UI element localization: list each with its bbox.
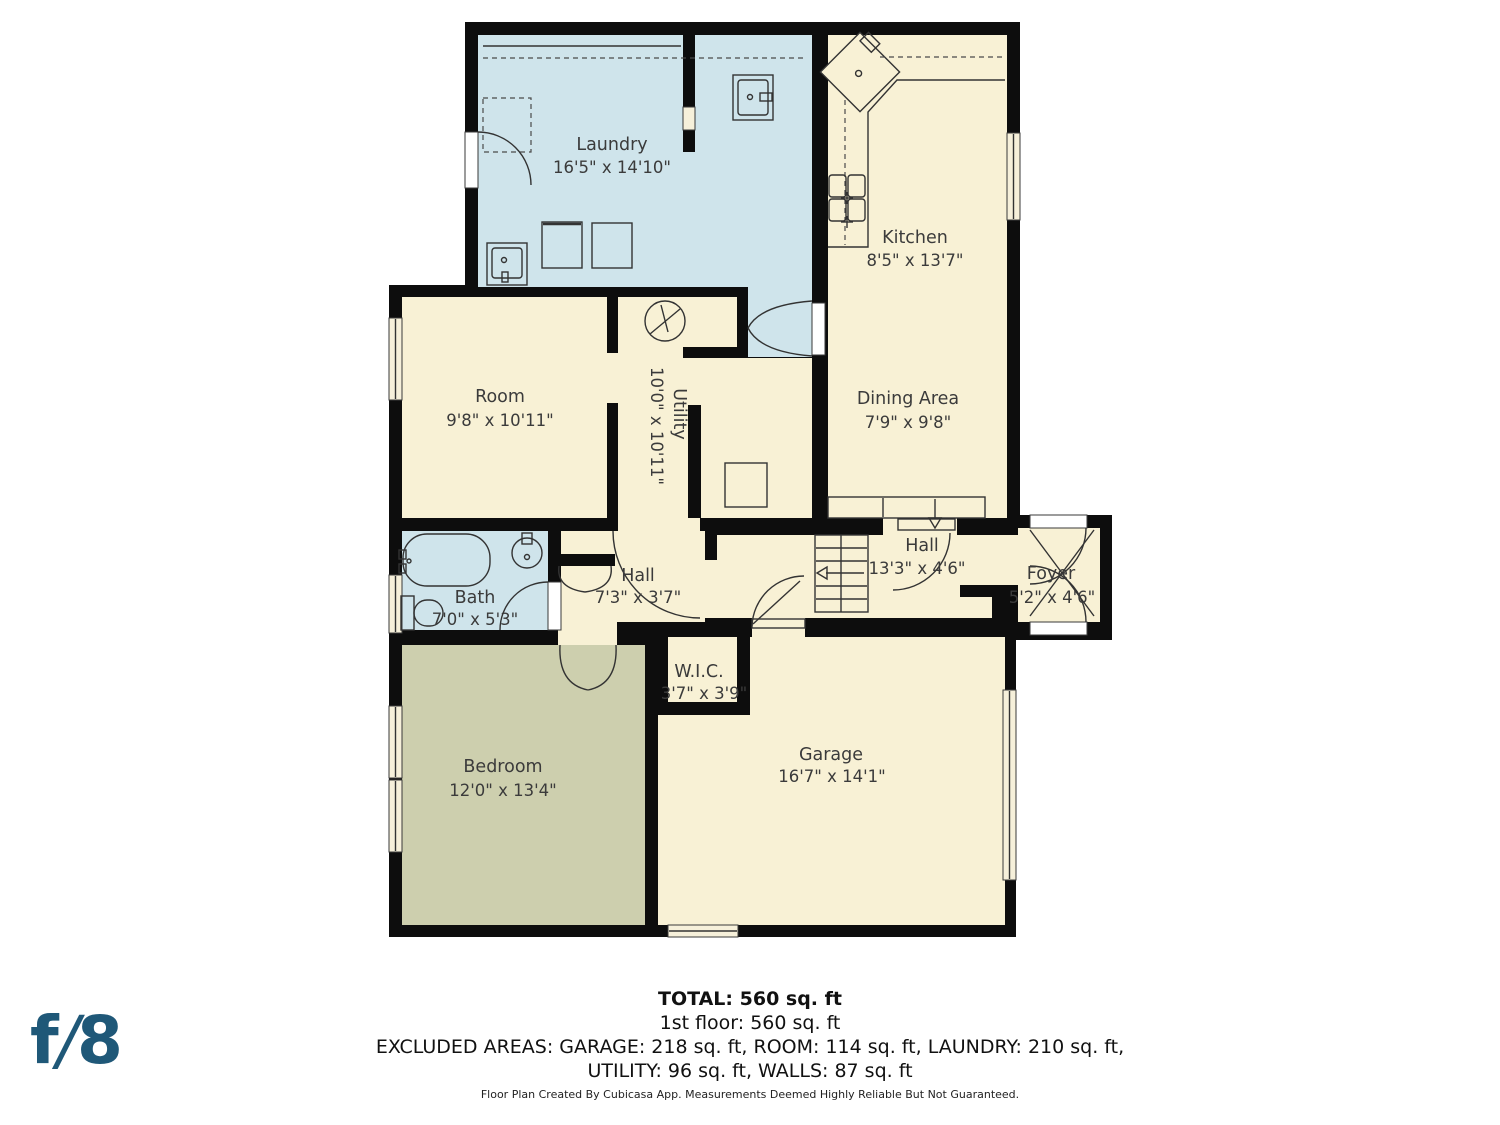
wic-label: W.I.C. bbox=[674, 662, 723, 682]
kitchen-window bbox=[1007, 133, 1020, 220]
excluded-areas-text-2: UTILITY: 96 sq. ft, WALLS: 87 sq. ft bbox=[0, 1060, 1500, 1082]
room-label: Room bbox=[475, 387, 525, 407]
laundry-label: Laundry bbox=[576, 135, 647, 155]
room-floor bbox=[402, 297, 607, 518]
laundry-stub-wall bbox=[683, 22, 695, 107]
logo-8: 8 bbox=[77, 1002, 120, 1079]
f8-logo: f/8 bbox=[30, 1008, 120, 1074]
bath-dims: 7'0" x 5'3" bbox=[432, 610, 519, 629]
utility-hall-opening bbox=[618, 518, 700, 531]
room-utility-opening bbox=[607, 353, 618, 403]
hall-passage-opening bbox=[705, 560, 717, 618]
disclaimer-text: Floor Plan Created By Cubicasa App. Meas… bbox=[0, 1088, 1500, 1101]
laundry-stub-wall-2 bbox=[683, 130, 695, 152]
kitchen-dims: 8'5" x 13'7" bbox=[867, 251, 964, 270]
utility-dims: 10'0" x 10'11" bbox=[647, 367, 666, 485]
dining-label: Dining Area bbox=[857, 389, 959, 409]
bath-label: Bath bbox=[455, 588, 496, 608]
hall-jog-wall-v bbox=[992, 585, 1005, 632]
hall-lower-label: Hall bbox=[621, 566, 655, 586]
excluded-areas-text-1: EXCLUDED AREAS: GARAGE: 218 sq. ft, ROOM… bbox=[0, 1036, 1500, 1058]
hall-lower-dims: 7'3" x 3'7" bbox=[595, 588, 682, 607]
room-window bbox=[389, 318, 402, 400]
room-dims: 9'8" x 10'11" bbox=[446, 411, 554, 430]
floor-plan-page: Laundry 16'5" x 14'10" Kitchen 8'5" x 13… bbox=[0, 0, 1500, 1125]
hall-closet-wall bbox=[552, 554, 615, 566]
utility-label: Utility bbox=[669, 388, 689, 439]
foyer-label: Foyer bbox=[1027, 564, 1076, 584]
bedroom-window-1 bbox=[389, 706, 402, 778]
garage-window-bottom bbox=[668, 925, 738, 937]
kitchen-dining-floor bbox=[828, 35, 1007, 518]
hall-upper-label: Hall bbox=[905, 536, 939, 556]
kitchen-label: Kitchen bbox=[882, 228, 948, 248]
hall-upper-dims: 13'3" x 4'6" bbox=[869, 559, 966, 578]
dining-dims: 7'9" x 9'8" bbox=[865, 413, 952, 432]
first-floor-text: 1st floor: 560 sq. ft bbox=[0, 1012, 1500, 1034]
laundry-corridor-floor bbox=[748, 287, 812, 357]
bedroom-dims: 12'0" x 13'4" bbox=[449, 781, 557, 800]
bedroom-label: Bedroom bbox=[463, 757, 542, 777]
garage-window-right bbox=[1003, 690, 1016, 880]
garage-floor-left bbox=[658, 715, 750, 925]
foyer-dims: 5'2" x 4'6" bbox=[1009, 588, 1096, 607]
bedroom-opening bbox=[558, 622, 617, 645]
hall-foyer-opening bbox=[1005, 535, 1018, 585]
bath-window bbox=[389, 575, 402, 633]
floor-plan: Laundry 16'5" x 14'10" Kitchen 8'5" x 13… bbox=[380, 15, 1125, 945]
logo-slash: / bbox=[56, 1002, 77, 1079]
wic-dims: 3'7" x 3'9" bbox=[661, 684, 748, 703]
utility-upper-floor bbox=[618, 297, 737, 347]
total-area-text: TOTAL: 560 sq. ft bbox=[0, 988, 1500, 1010]
garage-label: Garage bbox=[799, 745, 863, 765]
laundry-passthrough-window bbox=[683, 107, 695, 130]
logo-f: f bbox=[30, 1002, 56, 1079]
utility-connector-floor bbox=[618, 347, 683, 358]
laundry-dims: 16'5" x 14'10" bbox=[553, 158, 671, 177]
bedroom-window-2 bbox=[389, 780, 402, 852]
garage-dims: 16'7" x 14'1" bbox=[778, 767, 886, 786]
